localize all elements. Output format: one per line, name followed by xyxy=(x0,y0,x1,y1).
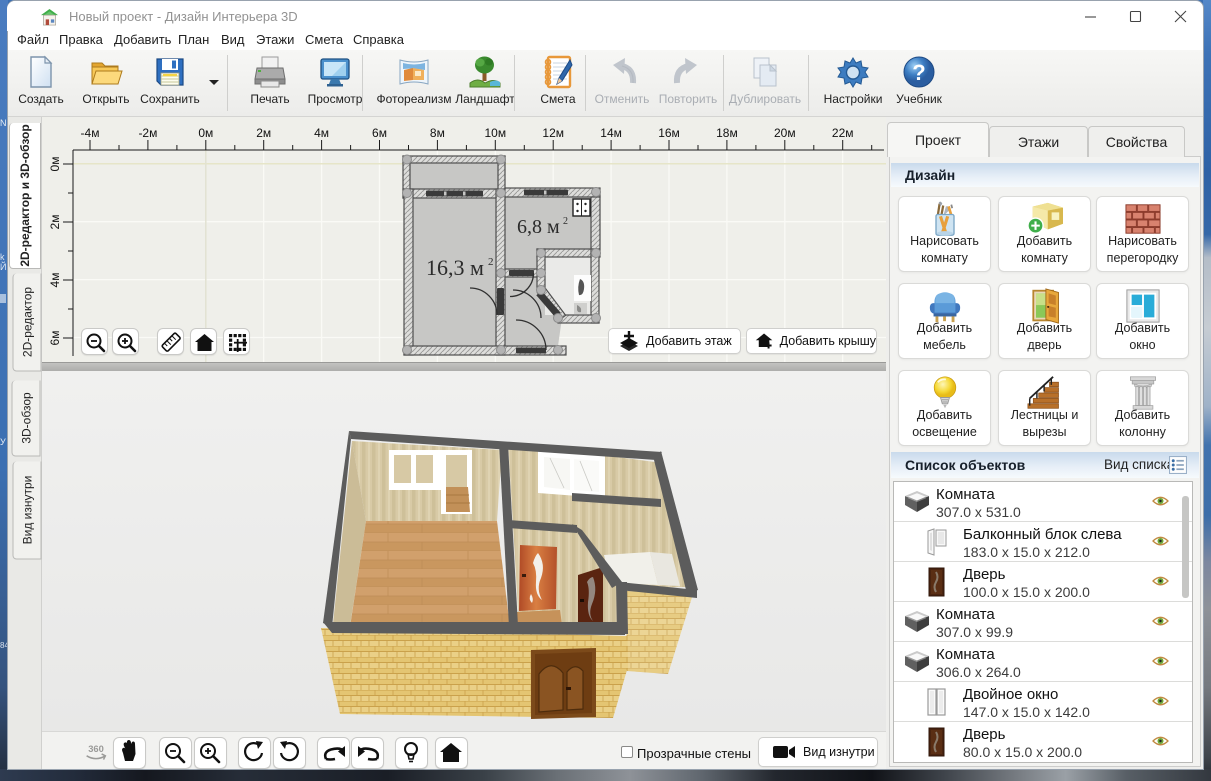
svg-text:0м: 0м xyxy=(198,126,213,140)
svg-text:16м: 16м xyxy=(658,126,680,140)
svg-text:18м: 18м xyxy=(716,126,738,140)
svg-text:20м: 20м xyxy=(774,126,796,140)
svg-text:2м: 2м xyxy=(48,215,62,230)
svg-text:12м: 12м xyxy=(542,126,564,140)
svg-text:360: 360 xyxy=(88,744,104,754)
svg-text:8м: 8м xyxy=(430,126,445,140)
svg-text:6м: 6м xyxy=(48,331,62,346)
svg-text:4м: 4м xyxy=(314,126,329,140)
svg-text:0м: 0м xyxy=(48,157,62,172)
svg-text:10м: 10м xyxy=(484,126,506,140)
svg-text:6,8 м: 6,8 м xyxy=(517,216,560,238)
svg-text:14м: 14м xyxy=(600,126,622,140)
svg-text:-4м: -4м xyxy=(81,126,100,140)
svg-text:2м: 2м xyxy=(256,126,271,140)
svg-text:2: 2 xyxy=(563,216,568,227)
svg-text:22м: 22м xyxy=(832,126,854,140)
svg-text:2: 2 xyxy=(488,256,494,268)
svg-text:16,3 м: 16,3 м xyxy=(426,255,484,280)
svg-text:-2м: -2м xyxy=(138,126,157,140)
svg-text:6м: 6м xyxy=(372,126,387,140)
svg-text:?: ? xyxy=(912,60,925,85)
svg-text:4м: 4м xyxy=(48,273,62,288)
